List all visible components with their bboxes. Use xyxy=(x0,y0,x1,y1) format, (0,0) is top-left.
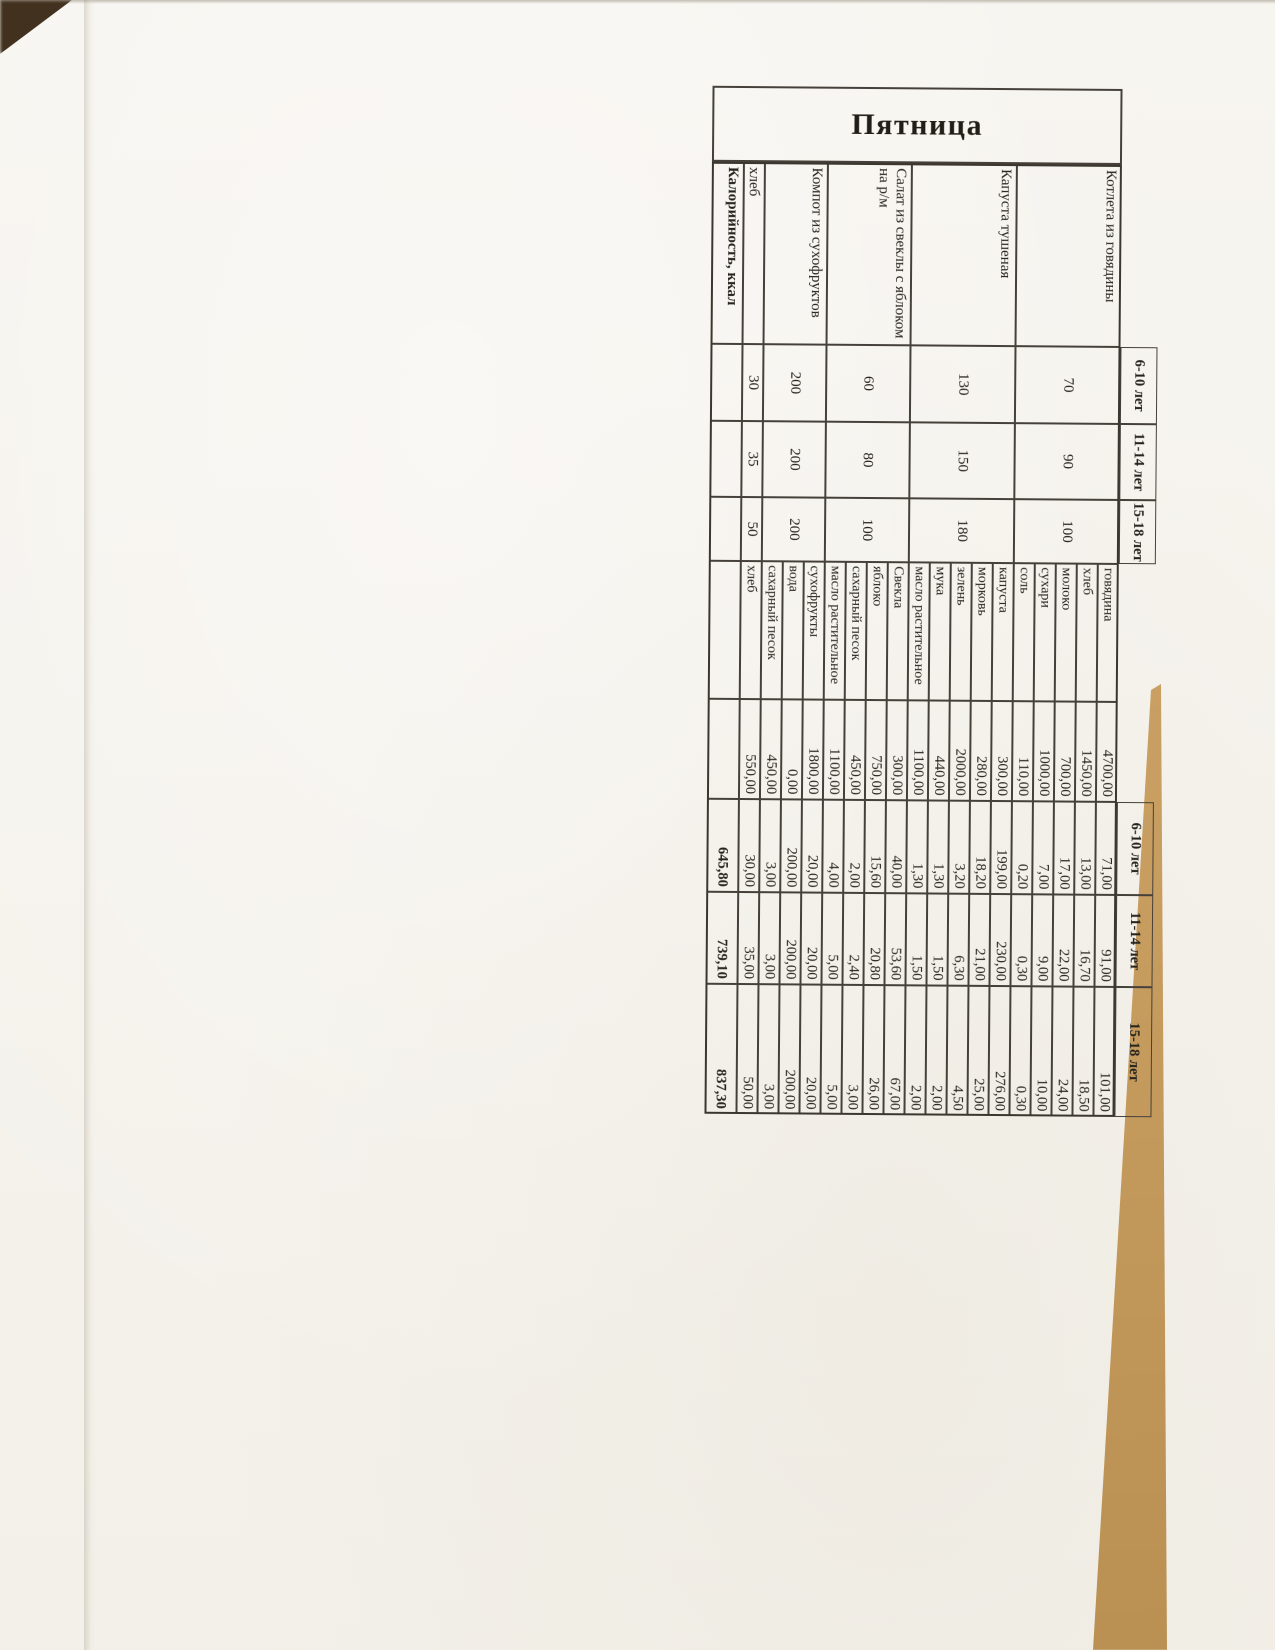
portion-cell: 70 xyxy=(1015,346,1121,424)
portion-cell: 60 xyxy=(826,345,911,423)
gross-amount-cell: 1800,00 xyxy=(802,699,824,799)
ingredient-cell: масло растительное xyxy=(824,562,846,700)
amount-cell: 24,00 xyxy=(1051,986,1073,1116)
ingredient-cell: хлеб xyxy=(1076,564,1098,702)
gross-amount-cell: 1100,00 xyxy=(907,700,929,800)
scanned-page: Пятница 6-10 лет11-14 лет15-18 лет6-10 л… xyxy=(0,0,1275,1650)
amount-cell: 3,00 xyxy=(759,799,781,892)
portion-cell: 100 xyxy=(825,498,910,563)
ingredient-cell: хлеб xyxy=(740,561,762,699)
page-title: Пятница xyxy=(851,108,983,143)
amount-cell: 199,00 xyxy=(990,801,1012,894)
ingredient-cell: вода xyxy=(782,561,804,699)
gross-amount-cell: 110,00 xyxy=(1012,701,1034,801)
amount-cell: 7,00 xyxy=(1032,801,1054,894)
gross-amount-cell: 450,00 xyxy=(760,699,782,799)
empty-cell xyxy=(707,699,740,799)
amount-cell: 13,00 xyxy=(1074,802,1096,895)
portion-cell: 50 xyxy=(741,497,763,561)
ingredient-cell: зелень xyxy=(950,563,972,701)
gross-amount-cell: 280,00 xyxy=(970,701,992,801)
amount-cell: 18,20 xyxy=(969,801,991,894)
gross-amount-cell: 750,00 xyxy=(865,700,887,800)
amount-cell: 30,00 xyxy=(738,799,760,892)
ingredient-cell: морковь xyxy=(971,563,993,701)
ingredient-cell: мука xyxy=(929,562,951,700)
gross-amount-cell: 550,00 xyxy=(739,699,761,799)
amount-cell: 40,00 xyxy=(885,800,907,893)
amount-cell: 20,00 xyxy=(800,892,822,984)
amount-cell: 35,00 xyxy=(737,892,759,984)
portion-cell: 200 xyxy=(762,421,826,497)
amount-cell: 3,00 xyxy=(758,892,780,984)
amount-cell: 5,00 xyxy=(820,985,842,1115)
ingredient-cell: капуста xyxy=(992,563,1014,701)
ingredient-cell: сухофрукты xyxy=(803,561,825,699)
age-header-cell: 11-14 лет xyxy=(1115,895,1153,987)
amount-cell: 20,80 xyxy=(863,893,885,985)
menu-table: Пятница 6-10 лет11-14 лет15-18 лет6-10 л… xyxy=(704,86,1159,1117)
gross-amount-cell: 300,00 xyxy=(991,701,1013,801)
gross-amount-cell: 0,00 xyxy=(781,699,803,799)
amount-cell: 18,50 xyxy=(1072,987,1094,1117)
amount-cell: 200,00 xyxy=(780,799,802,892)
amount-cell: 0,20 xyxy=(1011,801,1033,894)
amount-cell: 0,30 xyxy=(1010,894,1032,986)
calories-label-cell: Калорийность, ккал xyxy=(711,162,744,344)
gross-amount-cell: 4700,00 xyxy=(1096,702,1118,802)
portion-cell: 100 xyxy=(1014,499,1119,564)
amount-cell: 1,30 xyxy=(927,800,949,893)
empty-cell xyxy=(710,344,743,421)
amount-cell: 276,00 xyxy=(988,986,1010,1116)
portion-cell: 200 xyxy=(762,497,826,561)
amount-cell: 5,00 xyxy=(821,893,843,985)
ingredient-cell: сахарный песок xyxy=(845,562,867,700)
age-header-cell: 6-10 лет xyxy=(1120,347,1158,424)
portion-cell: 180 xyxy=(909,498,1014,563)
amount-cell: 230,00 xyxy=(989,894,1011,986)
amount-cell: 6,30 xyxy=(947,894,969,986)
amount-cell: 200,00 xyxy=(778,984,800,1114)
age-header-cell: 6-10 лет xyxy=(1116,802,1154,895)
ingredient-cell: сухари xyxy=(1034,563,1056,701)
amount-cell: 16,70 xyxy=(1073,895,1095,987)
amount-cell: 4,50 xyxy=(946,986,968,1116)
gross-amount-cell: 450,00 xyxy=(844,700,866,800)
gross-amount-cell: 700,00 xyxy=(1054,701,1076,801)
portion-cell: 80 xyxy=(825,422,910,499)
amount-cell: 3,20 xyxy=(948,801,970,894)
amount-cell: 10,00 xyxy=(1030,986,1052,1116)
amount-cell: 20,00 xyxy=(801,799,823,892)
amount-cell: 2,00 xyxy=(843,800,865,893)
amount-cell: 2,00 xyxy=(925,985,947,1115)
gross-amount-cell: 2000,00 xyxy=(949,701,971,801)
amount-cell: 1,50 xyxy=(926,893,948,985)
ingredient-cell: молоко xyxy=(1055,563,1077,701)
portion-cell: 150 xyxy=(909,422,1015,499)
amount-cell: 53,60 xyxy=(884,893,906,985)
amount-cell: 9,00 xyxy=(1031,894,1053,986)
amount-cell: 3,00 xyxy=(841,985,863,1115)
calories-value-cell: 739,10 xyxy=(705,892,738,984)
amount-cell: 50,00 xyxy=(736,984,758,1114)
amount-cell: 1,30 xyxy=(906,800,928,893)
amount-cell: 67,00 xyxy=(883,985,905,1115)
amount-cell: 1,50 xyxy=(905,893,927,985)
gross-amount-cell: 1450,00 xyxy=(1075,702,1097,802)
portion-cell: 30 xyxy=(742,344,764,421)
ingredient-cell: Свекла xyxy=(887,562,909,700)
portion-cell: 90 xyxy=(1014,423,1120,500)
dish-name-cell: Капуста тушеная xyxy=(911,163,1017,346)
age-header-cell: 11-14 лет xyxy=(1119,424,1157,500)
dish-name-cell: Котлета из говядины xyxy=(1016,164,1122,347)
empty-cell xyxy=(709,497,742,561)
amount-cell: 20,00 xyxy=(799,984,821,1114)
amount-cell: 2,40 xyxy=(842,893,864,985)
calories-value-cell: 645,80 xyxy=(706,799,739,892)
amount-cell: 15,60 xyxy=(864,800,886,893)
ingredient-cell: говядина xyxy=(1097,564,1119,702)
gross-amount-cell: 1100,00 xyxy=(823,700,845,800)
empty-cell xyxy=(709,421,742,497)
ingredient-cell: соль xyxy=(1013,563,1035,701)
amount-cell: 0,30 xyxy=(1009,986,1031,1116)
amount-cell: 25,00 xyxy=(967,986,989,1116)
empty-cell xyxy=(708,561,741,699)
ingredient-cell: яблоко xyxy=(866,562,888,700)
gross-amount-cell: 1000,00 xyxy=(1033,701,1055,801)
amount-cell: 71,00 xyxy=(1095,802,1117,895)
amount-cell: 91,00 xyxy=(1094,895,1116,987)
age-header-cell: 15-18 лет xyxy=(1114,987,1152,1117)
amount-cell: 2,00 xyxy=(904,985,926,1115)
gross-amount-cell: 300,00 xyxy=(886,700,908,800)
amount-cell: 17,00 xyxy=(1053,801,1075,894)
page-corner-shadow xyxy=(0,0,72,54)
amount-cell: 4,00 xyxy=(822,800,844,893)
title-cell: Пятница xyxy=(712,86,1123,165)
gross-amount-cell: 440,00 xyxy=(928,700,950,800)
portion-cell: 130 xyxy=(910,345,1016,423)
dish-name-cell: Салат из свеклы с яблоком на р/м xyxy=(827,163,912,346)
paper-left-edge xyxy=(84,0,96,1650)
amount-cell: 3,00 xyxy=(757,984,779,1114)
dish-name-cell: Компот из сухофруктов xyxy=(764,162,828,344)
portion-cell: 35 xyxy=(741,421,763,497)
amount-cell: 101,00 xyxy=(1093,987,1115,1117)
portion-cell: 200 xyxy=(763,344,827,421)
amount-cell: 26,00 xyxy=(862,985,884,1115)
calories-value-cell: 837,30 xyxy=(704,984,737,1114)
amount-cell: 200,00 xyxy=(779,892,801,984)
age-header-cell: 15-18 лет xyxy=(1119,500,1157,564)
amount-cell: 21,00 xyxy=(968,894,990,986)
amount-cell: 22,00 xyxy=(1052,894,1074,986)
ingredient-cell: сахарный песок xyxy=(761,561,783,699)
dish-name-cell: хлеб xyxy=(743,162,765,344)
ingredient-cell: масло растительное xyxy=(908,562,930,700)
